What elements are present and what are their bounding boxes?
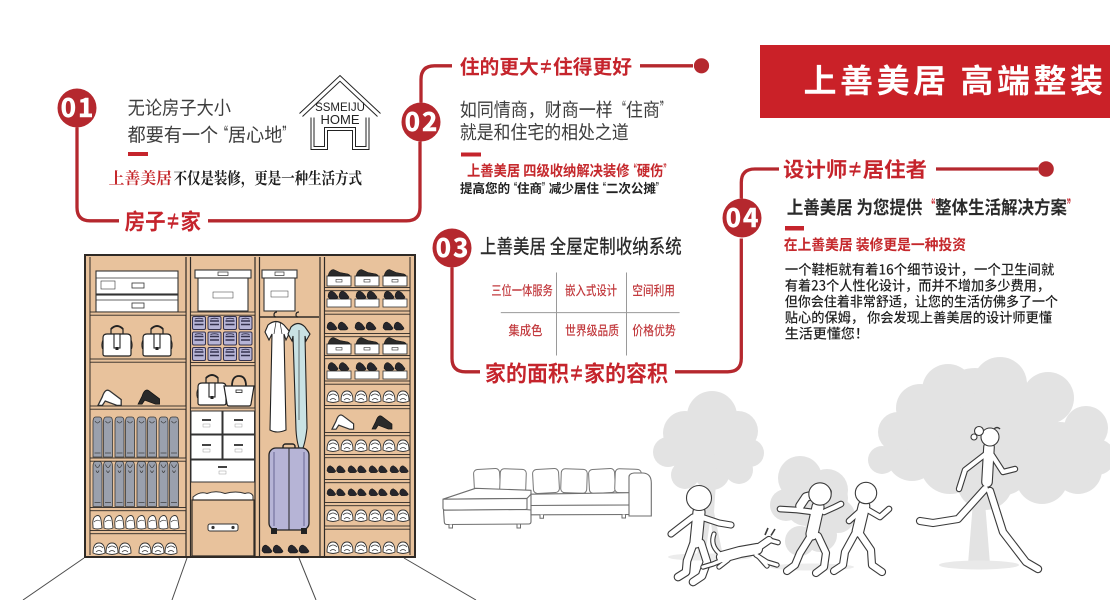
svg-text:HOME: HOME	[321, 112, 360, 127]
